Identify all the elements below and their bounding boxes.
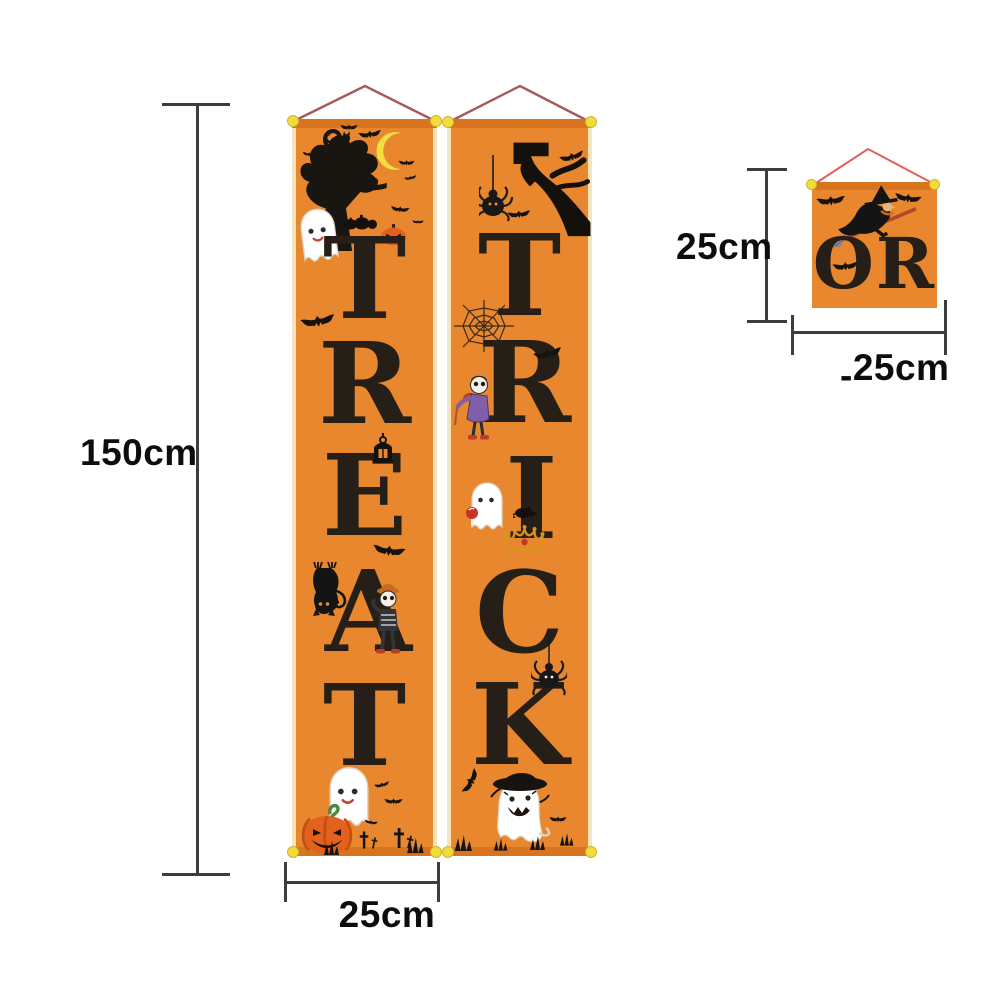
pin-icon: [806, 179, 817, 190]
banner-letter: C: [447, 569, 592, 659]
pin-icon: [442, 846, 454, 858]
grass-icon: [559, 831, 577, 848]
pin-icon: [430, 846, 442, 858]
small-height-dimension-cap-bottom: [747, 320, 787, 323]
banner-letter: E: [292, 452, 437, 542]
hanging-string-left: [288, 84, 441, 124]
banner-letter: T: [292, 235, 437, 325]
lantern-icon: [368, 433, 398, 467]
banner-letter: R: [292, 340, 437, 430]
bat-icon: [412, 219, 424, 225]
height-dimension-line: [196, 104, 199, 876]
pin-icon: [287, 115, 299, 127]
small-width-dimension-line: [792, 331, 947, 334]
grass-icon: [453, 835, 477, 851]
banner-letter: T: [447, 232, 592, 322]
bat-icon: [398, 159, 415, 167]
grass-icon: [320, 841, 346, 855]
pin-icon: [585, 116, 597, 128]
height-dimension-label: 150cm: [80, 432, 194, 474]
pin-icon: [585, 846, 597, 858]
height-dimension-cap-top: [162, 103, 230, 106]
width-dimension-tick-left: [284, 862, 287, 902]
banner-letter: K: [447, 681, 592, 771]
treat-banner: T R E A T: [292, 119, 437, 856]
pin-icon: [287, 846, 299, 858]
grass-icon: [406, 837, 428, 854]
spider-icon: [531, 637, 567, 697]
small-height-dimension-cap-top: [747, 168, 787, 171]
crown-icon: [501, 525, 548, 553]
rat-icon: [513, 505, 539, 519]
small-height-dimension-label: 25cm: [676, 226, 768, 268]
hanging-cat-icon: [304, 561, 348, 625]
pin-icon: [430, 115, 442, 127]
small-width-dimension-tick-left: [791, 315, 794, 355]
pin-icon: [442, 116, 454, 128]
trick-banner: T R I C K: [447, 119, 592, 856]
small-width-dimension-label: -25cm: [840, 347, 960, 397]
width-dimension-line: [285, 881, 440, 884]
pin-icon: [929, 179, 940, 190]
height-dimension-cap-bottom: [162, 873, 230, 876]
bat-icon: [384, 797, 403, 806]
skeleton-icon: [368, 579, 410, 661]
width-dimension-label: 25cm: [330, 894, 444, 936]
bat-icon: [549, 815, 567, 824]
bat-icon: [340, 123, 358, 132]
grass-icon: [529, 835, 549, 851]
or-banner: OR: [812, 182, 937, 308]
banner-letter: T: [292, 682, 437, 772]
stray-dash-mark: -: [840, 355, 853, 397]
skeleton-icon: [453, 373, 497, 441]
product-dimension-diagram: 150cm 25cm: [0, 0, 1000, 1000]
hanging-string-right: [443, 84, 596, 124]
grass-icon: [493, 837, 511, 852]
small-width-value: 25cm: [853, 347, 950, 388]
